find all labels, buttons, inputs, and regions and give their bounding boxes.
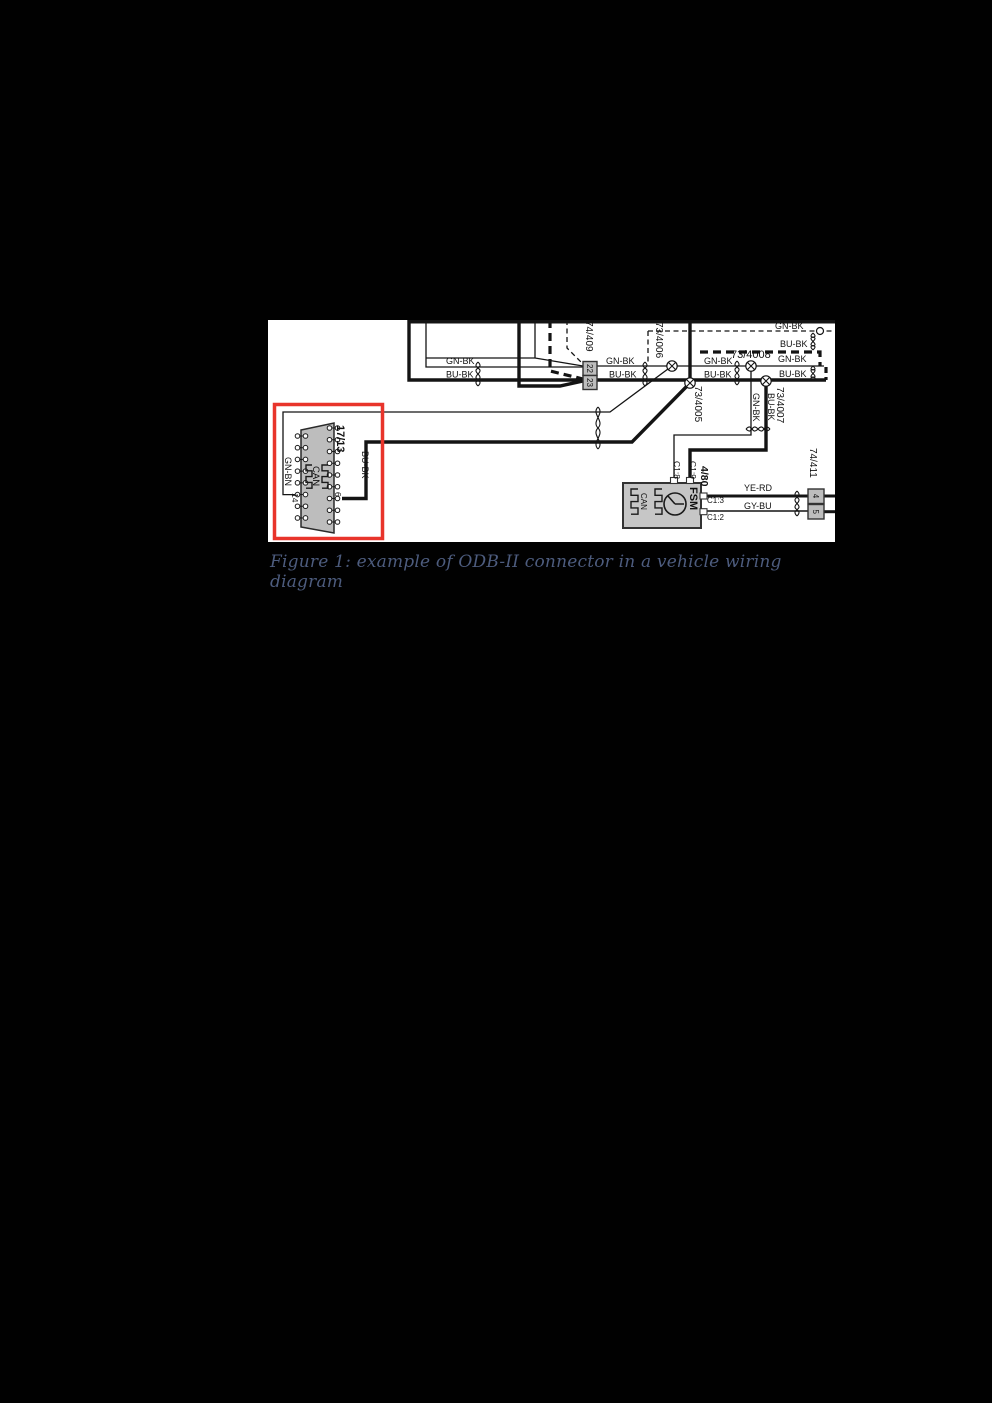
wire-label-gn-bk-dashed: GN-BK: [775, 321, 804, 331]
fsm-name-label: FSM: [687, 487, 699, 510]
wiring-diagram-canvas: GN-BKBU-BK74/4092223GN-BKBU-BK73/400673/…: [268, 320, 835, 542]
fsm-pin-c1-3-stub: [700, 493, 707, 499]
fsm-pin-c1-9-label: C1:9: [688, 461, 698, 479]
connector-ring-icon: [817, 328, 824, 335]
obd-pin-14-label: 14: [290, 493, 300, 503]
splice-icon: [667, 361, 677, 371]
wire-label-bu-bk-mid: BU-BK: [609, 370, 637, 380]
fsm-can-label: CAN: [639, 493, 648, 510]
figure-caption: Figure 1: example of ODB-II connector in…: [270, 552, 790, 592]
pin-22-label: 22: [585, 364, 594, 373]
pin-4-label: 4: [811, 494, 820, 499]
wire-label-bu-bk-left: BU-BK: [446, 370, 474, 380]
pin-23-label: 23: [585, 378, 594, 387]
wire-label-gn-bk-mid: GN-BK: [606, 356, 635, 366]
fsm-pin-c1-8-label: C1:8: [672, 461, 682, 479]
wire-label-gy-bu: GY-BU: [744, 501, 772, 511]
fsm-pin-c1-3-label: C1:3: [707, 496, 724, 505]
wire-bu-bk-from-obd: [342, 383, 690, 499]
wire-gn-bk-dashed-branch: [567, 320, 583, 364]
wire-label-bu-bk-obd: BU-BK: [360, 451, 370, 479]
fsm-pin-c1-2-label: C1:2: [707, 513, 724, 522]
splice-73-4006-label: 73/4006: [653, 322, 664, 359]
splice-73-4005-label: 73/4005: [692, 386, 703, 423]
fsm-component-number-label: 4/80: [698, 466, 710, 487]
fsm-pin-c1-2-stub: [700, 509, 707, 515]
wire-label-gn-bk-right2: GN-BK: [778, 354, 807, 364]
pin-5-label: 5: [811, 509, 820, 514]
twisted-pair-icon: [476, 362, 480, 386]
wire-label-bu-bk-dashed: BU-BK: [780, 339, 808, 349]
wire-label-gn-bk-right1: GN-BK: [704, 356, 733, 366]
obd-can-label: CAN: [310, 466, 321, 486]
wire-label-bu-bk-right2: BU-BK: [779, 369, 807, 379]
wire-label-gn-bk-drop: GN-BK: [751, 393, 761, 422]
wire-label-gn-bk-left: GN-BK: [446, 356, 475, 366]
wire-label-ye-rd: YE-RD: [744, 483, 773, 493]
splice-73-4007-label: 73/4007: [774, 387, 785, 424]
document-page: GN-BKBU-BK74/4092223GN-BKBU-BK73/400673/…: [0, 0, 992, 1403]
wire-label-gn-bn-obd: GN-BN: [283, 457, 293, 486]
obd-pin-6-label: 6: [333, 492, 343, 497]
connector-74-411-label: 74/411: [807, 448, 818, 478]
wire-bu-bk-left: [409, 320, 583, 380]
splice-73-4008-label: 73/4008: [731, 349, 771, 361]
obd-connector-17-13-label: 17/13: [334, 425, 346, 453]
wiring-diagram-figure: GN-BKBU-BK74/4092223GN-BKBU-BK73/400673/…: [268, 320, 835, 542]
connector-74-409-label: 74/409: [583, 321, 594, 352]
splice-icon: [746, 361, 756, 371]
splice-icon: [761, 376, 771, 386]
wire-label-bu-bk-right1: BU-BK: [704, 370, 732, 380]
